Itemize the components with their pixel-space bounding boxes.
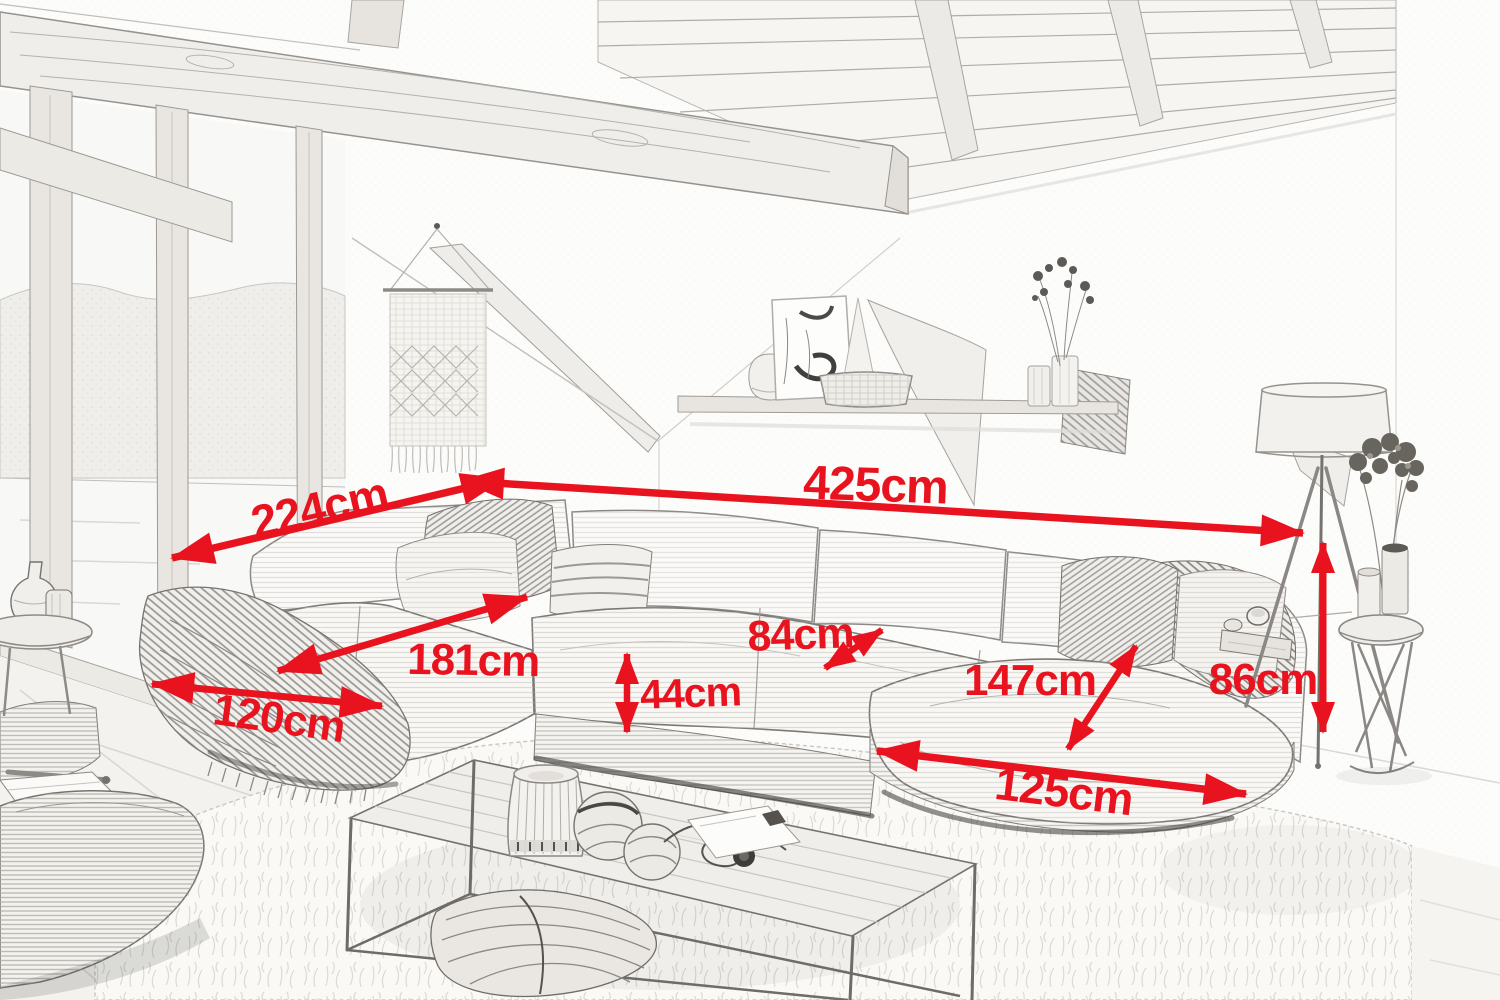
pillow-dark-right [1058, 557, 1178, 667]
ceiling-post [348, 0, 404, 48]
dim-label-seat-height: 44cm [639, 668, 741, 717]
dimension-diagram: 425cm 224cm 181cm 120cm 44cm 84cm 147cm … [0, 0, 1500, 1000]
vase [1052, 356, 1078, 406]
dim-label-chaise-length: 181cm [407, 635, 540, 686]
nail [434, 223, 440, 229]
vase [1028, 366, 1050, 406]
dim-label-back-height: 86cm [1209, 655, 1318, 704]
dim-label-seat-depth: 84cm [747, 609, 855, 661]
basket [820, 372, 912, 407]
sketch-canvas: 425cm 224cm 181cm 120cm 44cm 84cm 147cm … [0, 0, 1500, 1000]
dim-label-total-width: 425cm [802, 457, 948, 515]
bowl [1224, 619, 1242, 631]
lantern [508, 765, 584, 856]
dim-label-right-depth: 147cm [964, 656, 1096, 705]
